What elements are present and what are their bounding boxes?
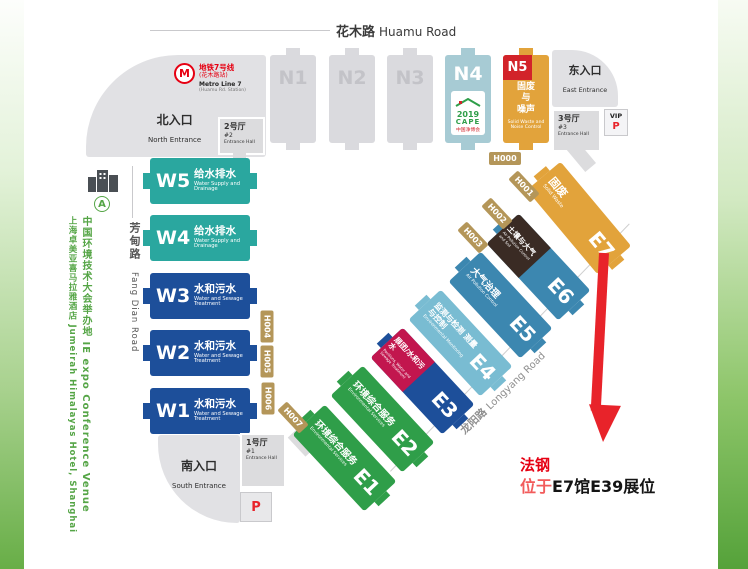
right-green-border — [718, 0, 748, 569]
cape-house-roof-icon — [455, 98, 481, 107]
metro-icon: M — [174, 63, 195, 84]
expo-floor-map: 花木路Huamu Road 芳甸路 Fang Dian Road 龙阳路Long… — [0, 0, 748, 569]
cape-sub: 中国净博会 — [451, 128, 485, 133]
hall2-en: Entrance Hall — [224, 140, 259, 146]
hall-n4: N4 2019 CAPE 中国净博会 — [445, 55, 491, 143]
fangdian-road-zh: 芳甸路 — [128, 222, 141, 261]
metro-info: M 地铁7号线 (花木路站) Metro Line 7 (Huamu Rd. S… — [174, 63, 246, 94]
hall-w3: W3 水和污水Water and Sewage Treatment — [150, 273, 250, 319]
hall-w1: W1 水和污水Water and Sewage Treatment — [150, 388, 250, 434]
metro-text: 地铁7号线 (花木路站) Metro Line 7 (Huamu Rd. Sta… — [199, 63, 246, 94]
w2-en: Water and Sewage Treatment — [194, 354, 244, 365]
hall-w2-label: W2 — [156, 342, 194, 364]
corridor-h003: H003 — [457, 221, 488, 253]
n5-zh-2: 与 — [503, 93, 549, 104]
metro-station-zh: (花木路站) — [199, 72, 246, 79]
huamu-road-zh: 花木路 — [336, 25, 375, 40]
booth-prefix: 位于 — [520, 477, 552, 496]
hall-n4-label: N4 — [445, 63, 491, 85]
fangdian-road-en: Fang Dian Road — [129, 272, 139, 352]
left-green-border — [0, 0, 24, 569]
north-entrance-label: 北入口 North Entrance — [148, 113, 201, 146]
w3-en: Water and Sewage Treatment — [194, 297, 244, 308]
booth-pointer-arrow — [591, 253, 609, 411]
corridor-h005: H005 — [261, 346, 274, 378]
hotel-building-icon — [86, 168, 120, 192]
booth-company: 法钢 — [520, 455, 655, 476]
parking-icon: P — [251, 500, 261, 515]
hall-w5-label: W5 — [156, 170, 194, 192]
w5-en: Water Supply and Drainage — [194, 182, 244, 193]
hall1-zh: 1号厅 — [246, 438, 280, 448]
w3-zh: 水和污水 — [194, 284, 244, 296]
hall-n2-label: N2 — [329, 67, 375, 89]
vip-parking: VIP P — [604, 109, 628, 136]
hall-n2: N2 — [329, 55, 375, 143]
corridor-h000: H000 — [489, 152, 521, 165]
corridor-h006: H006 — [262, 383, 275, 415]
south-entrance-zh: 南入口 — [158, 459, 240, 473]
south-entrance-area: 南入口 South Entrance — [158, 435, 240, 523]
fangdian-road-label: 芳甸路 Fang Dian Road — [125, 222, 144, 352]
huamu-road-label: 花木路Huamu Road — [336, 21, 456, 40]
hall-n3: N3 — [387, 55, 433, 143]
hall1-num: #1 — [246, 448, 280, 456]
w1-zh: 水和污水 — [194, 399, 244, 411]
hall1-en: Entrance Hall — [246, 456, 280, 462]
entrance-hall-1: 1号厅 #1 Entrance Hall — [240, 433, 286, 488]
fangdian-road-line — [132, 166, 133, 218]
metro-station-en: (Huamu Rd. Station) — [199, 88, 246, 94]
east-entrance-en: East Entrance — [563, 86, 607, 94]
corridor-h004: H004 — [261, 311, 274, 343]
hall-w3-label: W3 — [156, 285, 194, 307]
venue-marker-a: A — [94, 196, 110, 212]
hall-n1: N1 — [270, 55, 316, 143]
cape-name: CAPE — [451, 119, 485, 127]
w4-zh: 给水排水 — [194, 226, 244, 238]
hall2-num: #2 — [224, 132, 259, 140]
huamu-road-line — [150, 30, 330, 31]
east-entrance-area: 东入口 East Entrance — [552, 50, 618, 107]
n5-zh-3: 噪声 — [503, 105, 549, 116]
north-entrance-zh: 北入口 — [148, 113, 201, 127]
venue-note: 中国环境技术大会举办地 IE expo Conference Venue 上海卓… — [66, 216, 93, 516]
south-entrance-en: South Entrance — [172, 482, 226, 490]
huamu-road-en: Huamu Road — [379, 25, 456, 39]
hall-w1-label: W1 — [156, 400, 194, 422]
booth-pointer-arrowhead — [587, 404, 621, 443]
hall-w2: W2 水和污水Water and Sewage Treatment — [150, 330, 250, 376]
hall-e6-label: E6 — [543, 273, 579, 310]
n5-zh-1: 固废 — [503, 82, 549, 93]
hall3-en: Entrance Hall — [558, 132, 595, 138]
east-entrance-zh: 东入口 — [552, 64, 618, 77]
hall-w4-label: W4 — [156, 227, 194, 249]
cape-2019-logo: 2019 CAPE 中国净博会 — [451, 91, 485, 135]
hall-w5: W5 给水排水Water Supply and Drainage — [150, 158, 250, 204]
hall-n3-label: N3 — [387, 67, 433, 89]
hall-e3-label: E3 — [427, 387, 463, 424]
metro-line-zh: 地铁7号线 — [199, 63, 246, 72]
vip-label: VIP — [605, 113, 627, 121]
hall3-num: #3 — [558, 124, 595, 132]
hall-n5-label: N5 — [503, 55, 532, 80]
hall-n1-label: N1 — [270, 67, 316, 89]
w5-zh: 给水排水 — [194, 169, 244, 181]
n5-en: Solid Waste and Noise Control — [503, 120, 549, 131]
hall-n5: N5 固废 与 噪声 Solid Waste and Noise Control — [503, 55, 549, 143]
south-parking: P — [240, 492, 272, 522]
venue-note-line1: 中国环境技术大会举办地 IE expo Conference Venue — [78, 216, 93, 516]
w4-en: Water Supply and Drainage — [194, 239, 244, 250]
hall3-zh: 3号厅 — [558, 114, 595, 124]
hall2-zh: 2号厅 — [224, 122, 259, 132]
north-entrance-en: North Entrance — [148, 136, 201, 144]
hall-e1-label: E1 — [349, 464, 385, 501]
venue-note-line2: 上海卓美亚喜马拉雅酒店 Jumeirah Himalayas Hotel, Sh… — [66, 216, 78, 516]
hall-w4: W4 给水排水Water Supply and Drainage — [150, 215, 250, 261]
w2-zh: 水和污水 — [194, 341, 244, 353]
hall-e2-label: E2 — [387, 425, 423, 462]
hall-e5-label: E5 — [505, 311, 541, 348]
entrance-hall-2: 2号厅 #2 Entrance Hall — [218, 117, 265, 155]
booth-note: 法钢 位于E7馆E39展位 — [520, 455, 655, 498]
vip-parking-icon: P — [605, 121, 627, 133]
booth-location: E7馆E39展位 — [552, 477, 655, 496]
w1-en: Water and Sewage Treatment — [194, 412, 244, 423]
